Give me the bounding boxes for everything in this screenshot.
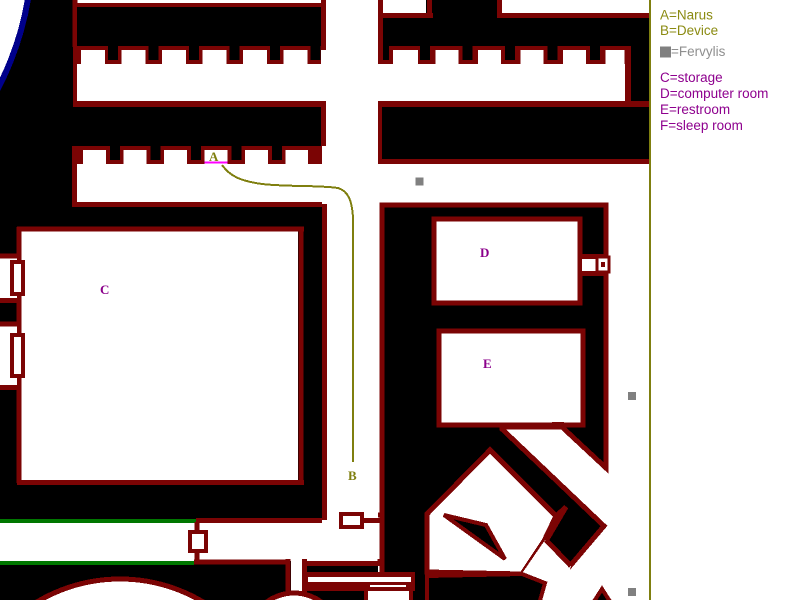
svg-text:D: D [480, 245, 489, 260]
svg-text:F=sleep room: F=sleep room [660, 118, 743, 133]
svg-text:A=Narus: A=Narus [660, 8, 713, 23]
svg-text:E=restroom: E=restroom [660, 102, 730, 117]
svg-text:C: C [100, 282, 109, 297]
svg-text:B: B [348, 468, 357, 483]
svg-text:D=computer room: D=computer room [660, 86, 768, 101]
svg-text:E: E [483, 356, 492, 371]
svg-text:=Fervylis: =Fervylis [671, 44, 726, 59]
svg-text:B=Device: B=Device [660, 23, 718, 38]
svg-text:C=storage: C=storage [660, 70, 723, 85]
svg-text:A: A [209, 149, 219, 164]
